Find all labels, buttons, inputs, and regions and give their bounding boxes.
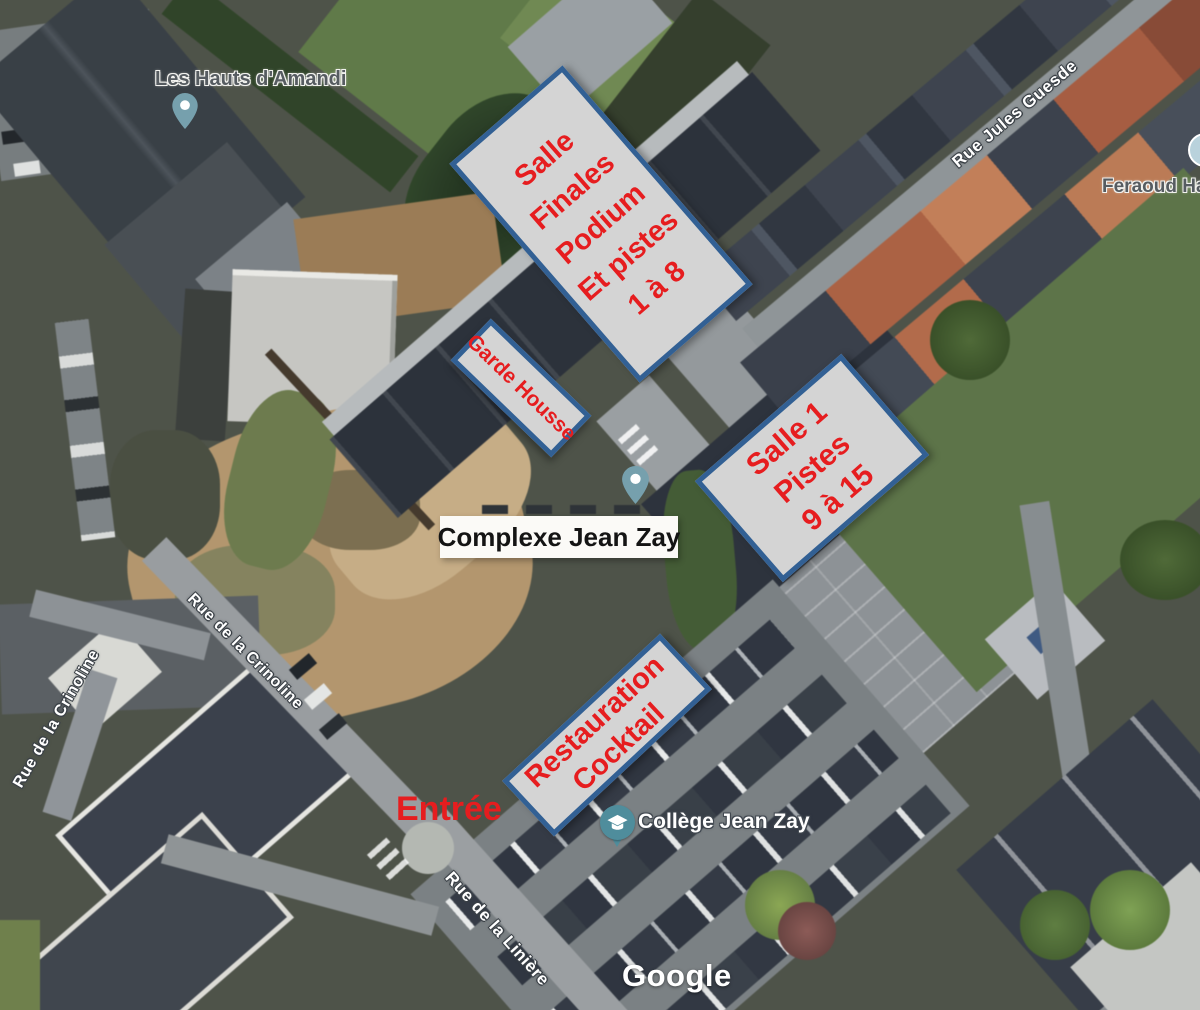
tree-red [778,902,836,960]
covered-label-fragments [482,505,642,514]
annotation-complexe-jean-zay: Complexe Jean Zay [440,516,678,558]
shadow [175,288,235,441]
poi-label-college-jean-zay[interactable]: Collège Jean Zay [638,810,810,834]
map-pin-complexe[interactable] [622,466,649,509]
google-watermark: Google [622,958,732,994]
tree [1090,870,1170,950]
map-canvas[interactable]: Les Hauts d'Amandi Rue Jules Guesde Fera… [0,0,1200,1010]
college-poi-icon[interactable] [600,805,635,840]
tree [1020,890,1090,960]
poi-label-feraoud[interactable]: Feraoud Ha [1102,176,1200,198]
side-street [55,319,116,542]
pin-icon [622,466,649,504]
graduation-cap-icon [606,811,629,834]
map-pin-les-hauts[interactable] [172,93,198,134]
grass-strip [0,920,40,1010]
tree [1120,520,1200,600]
pin-icon [172,93,198,129]
annotation-entree: Entrée [396,790,502,829]
poi-label-les-hauts-damandi[interactable]: Les Hauts d'Amandi [155,68,346,91]
tree [930,300,1010,380]
